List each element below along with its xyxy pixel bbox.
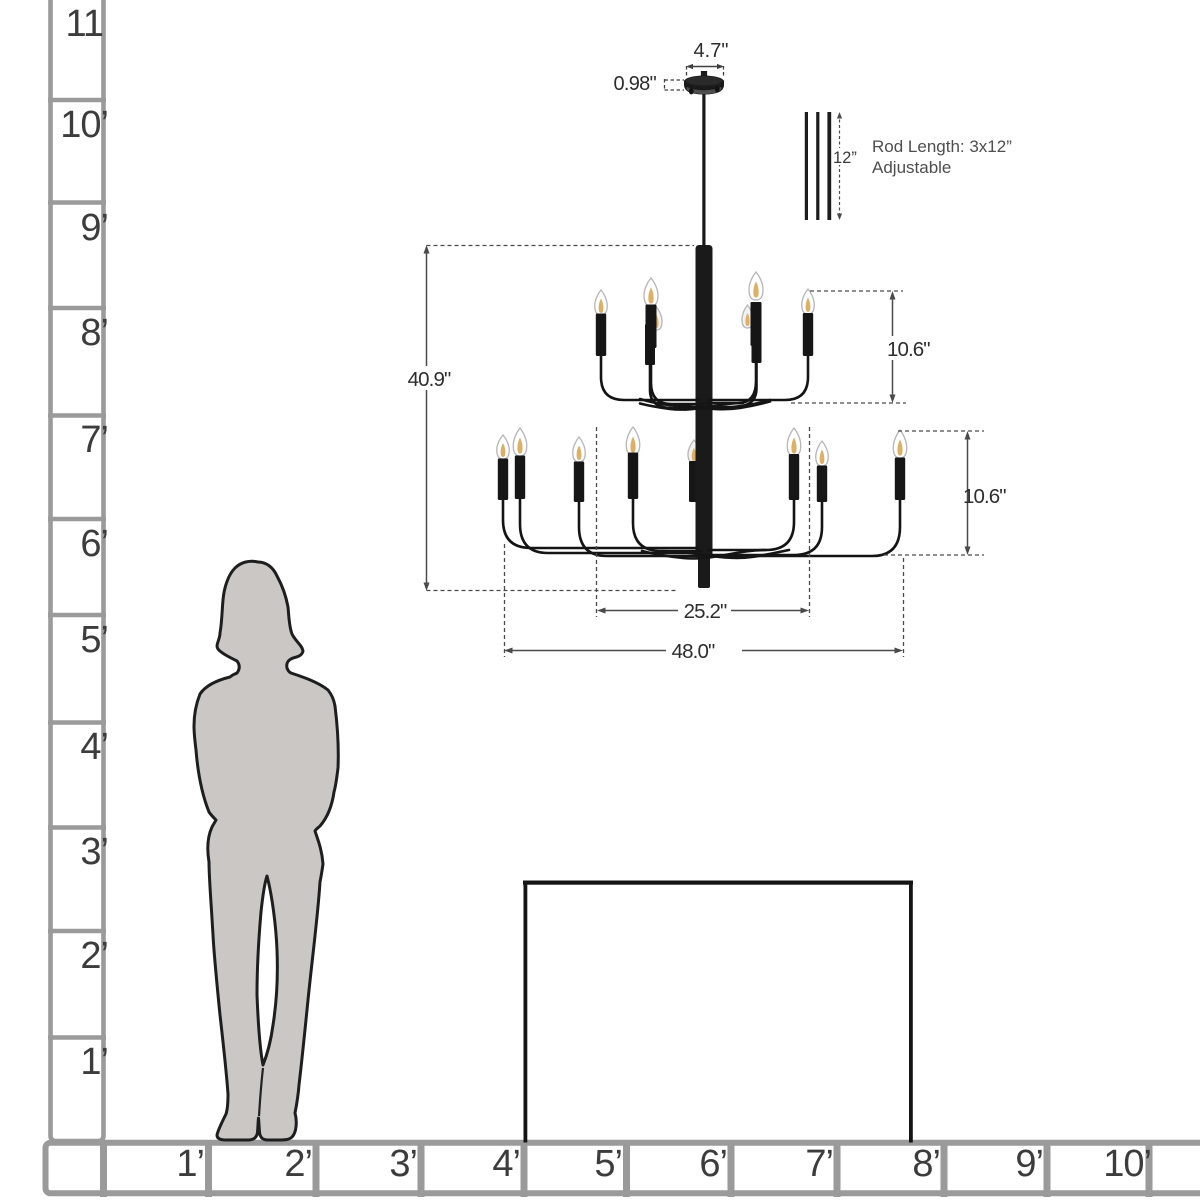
svg-text:9’: 9’ xyxy=(80,207,108,249)
svg-text:1’: 1’ xyxy=(80,1041,108,1083)
svg-text:48.0": 48.0" xyxy=(672,640,715,663)
svg-text:11: 11 xyxy=(66,3,103,45)
svg-text:0.98": 0.98" xyxy=(613,73,656,95)
svg-text:8’: 8’ xyxy=(912,1143,940,1185)
svg-text:1’: 1’ xyxy=(176,1143,204,1185)
svg-text:6’: 6’ xyxy=(80,523,108,565)
svg-text:4.7": 4.7" xyxy=(694,40,729,62)
svg-text:7’: 7’ xyxy=(805,1143,833,1185)
svg-text:10.6": 10.6" xyxy=(887,338,930,361)
svg-text:3’: 3’ xyxy=(389,1143,417,1185)
svg-text:9’: 9’ xyxy=(1015,1143,1043,1185)
svg-text:5’: 5’ xyxy=(80,619,108,661)
svg-text:Rod Length: 3x12”: Rod Length: 3x12” xyxy=(872,137,1012,156)
svg-text:25.2": 25.2" xyxy=(684,600,727,623)
svg-text:12”: 12” xyxy=(833,149,857,167)
svg-text:5’: 5’ xyxy=(594,1143,622,1185)
svg-text:4’: 4’ xyxy=(492,1143,520,1185)
svg-text:10.6": 10.6" xyxy=(963,485,1006,508)
svg-text:40.9": 40.9" xyxy=(408,368,451,391)
svg-text:4’: 4’ xyxy=(80,726,108,768)
svg-text:3’: 3’ xyxy=(80,831,108,873)
svg-text:10’: 10’ xyxy=(60,104,108,146)
svg-text:Adjustable: Adjustable xyxy=(872,158,951,177)
svg-text:2’: 2’ xyxy=(80,935,108,977)
svg-text:8’: 8’ xyxy=(80,312,108,354)
svg-text:7’: 7’ xyxy=(80,419,108,461)
svg-text:10’: 10’ xyxy=(1103,1143,1151,1185)
svg-text:6’: 6’ xyxy=(699,1143,727,1185)
svg-text:2’: 2’ xyxy=(284,1143,312,1185)
